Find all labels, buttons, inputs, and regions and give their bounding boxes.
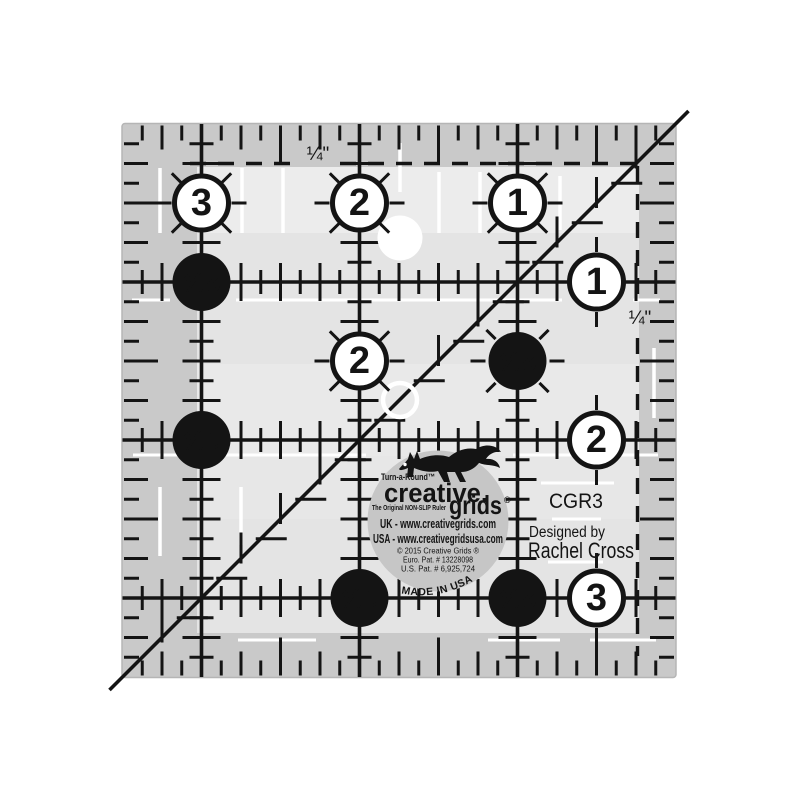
logo-us-patent: U.S. Pat. # 6,925,724 <box>401 564 475 574</box>
circle-number: 2 <box>349 182 370 224</box>
logo-usa-url: USA - www.creativegridsusa.com <box>373 531 503 546</box>
fox-eye <box>403 463 406 466</box>
circle-number: 2 <box>349 340 370 382</box>
circle-number-inverted: 1½ <box>340 583 379 614</box>
measure-circle: 1½ <box>331 569 389 627</box>
product-photo-canvas: Turn-a-Round™ creative. grids ® The Orig… <box>0 0 800 800</box>
circle-number-inverted: 2½ <box>498 583 537 614</box>
circle-number-inverted: 2½ <box>498 346 537 377</box>
circle-number: 1 <box>507 182 528 224</box>
circle-number: 2 <box>586 419 607 461</box>
logo-uk-url: UK - www.creativegrids.com <box>380 516 496 531</box>
product-code: CGR3 <box>549 490 603 513</box>
circle-number: 1 <box>586 261 607 303</box>
circle-number-inverted: 1½ <box>182 425 221 456</box>
measure-circle: 2½ <box>173 253 231 311</box>
circle-number: 3 <box>191 182 212 224</box>
measure-circle: 2½ <box>489 569 547 627</box>
registered-mark: ® <box>504 495 511 505</box>
quilting-ruler-image: Turn-a-Round™ creative. grids ® The Orig… <box>0 0 800 800</box>
measure-circle: 1½ <box>173 411 231 469</box>
logo-tagline: The Original NON-SLIP Ruler <box>372 503 446 512</box>
circle-number-inverted: 2½ <box>182 267 221 298</box>
hang-hole <box>378 216 423 261</box>
quarter-inch-label-right: ¼" <box>629 308 652 329</box>
quarter-inch-label-top: ¼" <box>307 144 330 165</box>
designer-name: Rachel Cross <box>528 538 634 563</box>
circle-number: 3 <box>586 577 607 619</box>
